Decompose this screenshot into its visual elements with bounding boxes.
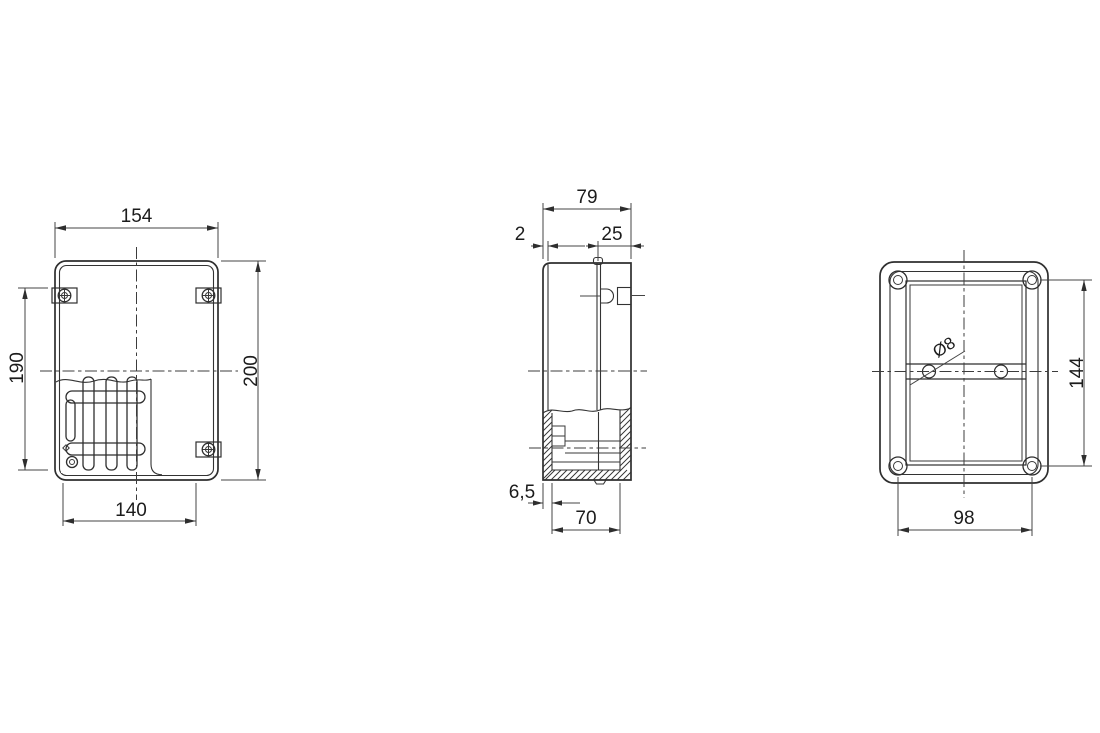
technical-drawing-page: 154 200 190 140 (0, 0, 1100, 733)
side-dim-depth-total: 79 (543, 187, 631, 259)
back-corner-screws (889, 271, 1041, 475)
side-dim-cover-depth: 25 (586, 224, 644, 261)
side-dim-label-70: 70 (575, 508, 596, 529)
side-dim-label-79: 79 (576, 187, 597, 208)
side-dim-label-25: 25 (601, 224, 622, 245)
back-inner-wall-inner (910, 285, 1022, 461)
back-hole-diameter-callout: Ø8 (910, 333, 965, 385)
side-dim-label-6-5: 6,5 (509, 482, 535, 503)
front-dim-label-top: 154 (121, 206, 153, 227)
front-view: 154 200 190 140 (7, 206, 266, 526)
back-inner-wall-outer (906, 281, 1026, 465)
front-dim-width-bottom: 140 (63, 483, 196, 526)
back-dim-label-144: 144 (1067, 357, 1088, 389)
side-dim-base-depth: 70 (552, 483, 620, 534)
side-dim-lid-thickness: 2 (515, 224, 585, 261)
front-dim-label-left: 190 (7, 352, 28, 384)
back-dim-horizontal: 98 (898, 477, 1032, 536)
junction-box-drawing: 154 200 190 140 (0, 0, 1100, 733)
side-dim-flange: 6,5 (509, 482, 580, 534)
back-dim-label-98: 98 (953, 508, 974, 529)
front-dim-height-left: 190 (7, 288, 48, 470)
front-dim-label-right: 200 (241, 355, 262, 387)
side-view: 79 2 25 6,5 (509, 187, 647, 534)
front-dim-label-bottom: 140 (115, 500, 147, 521)
back-view: Ø8 144 98 (872, 250, 1092, 536)
side-dim-label-2: 2 (515, 224, 526, 245)
